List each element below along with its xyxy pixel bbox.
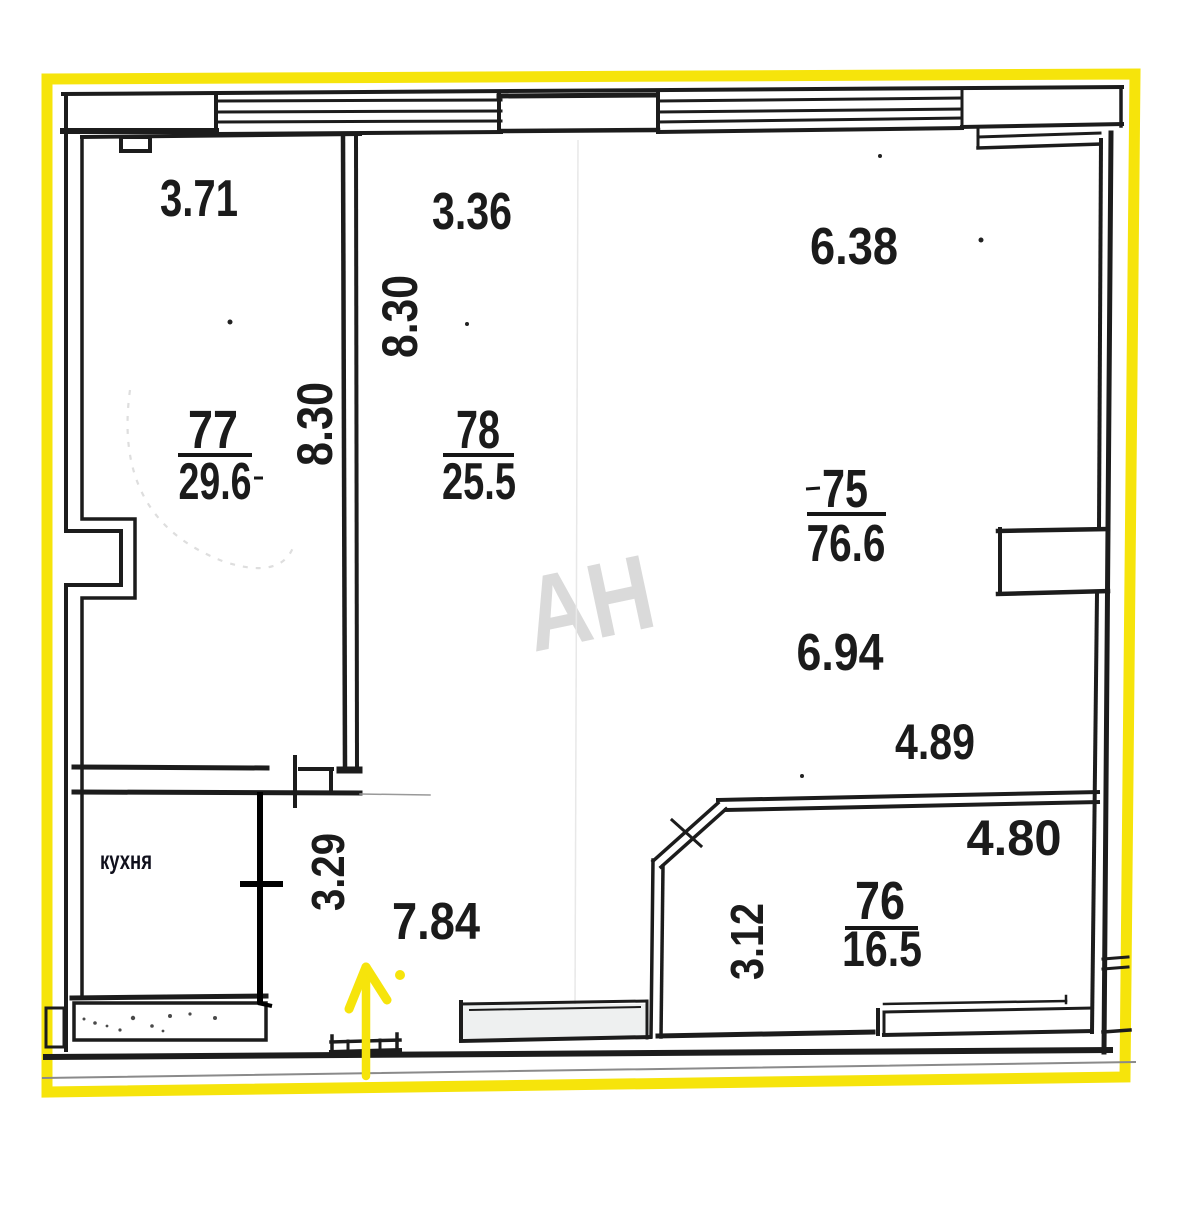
svg-text:4.80: 4.80 xyxy=(967,810,1062,866)
svg-text:кухня: кухня xyxy=(100,847,152,875)
svg-text:3.36: 3.36 xyxy=(432,183,512,241)
svg-text:16.5: 16.5 xyxy=(842,921,922,977)
svg-text:78: 78 xyxy=(456,400,500,460)
svg-text:8.30: 8.30 xyxy=(287,382,343,466)
svg-text:75: 75 xyxy=(822,459,868,519)
svg-text:7.84: 7.84 xyxy=(392,893,480,951)
svg-text:6.38: 6.38 xyxy=(810,218,898,276)
svg-text:4.89: 4.89 xyxy=(895,714,975,770)
svg-text:8.30: 8.30 xyxy=(372,275,428,358)
svg-text:3.29: 3.29 xyxy=(302,833,354,911)
svg-text:6.94: 6.94 xyxy=(797,624,884,682)
svg-text:29.6: 29.6 xyxy=(179,453,252,511)
svg-text:76.6: 76.6 xyxy=(807,515,886,573)
svg-text:77: 77 xyxy=(188,400,238,460)
svg-text:25.5: 25.5 xyxy=(442,453,516,511)
svg-text:3.71: 3.71 xyxy=(160,170,238,228)
svg-text:3.12: 3.12 xyxy=(721,903,773,980)
